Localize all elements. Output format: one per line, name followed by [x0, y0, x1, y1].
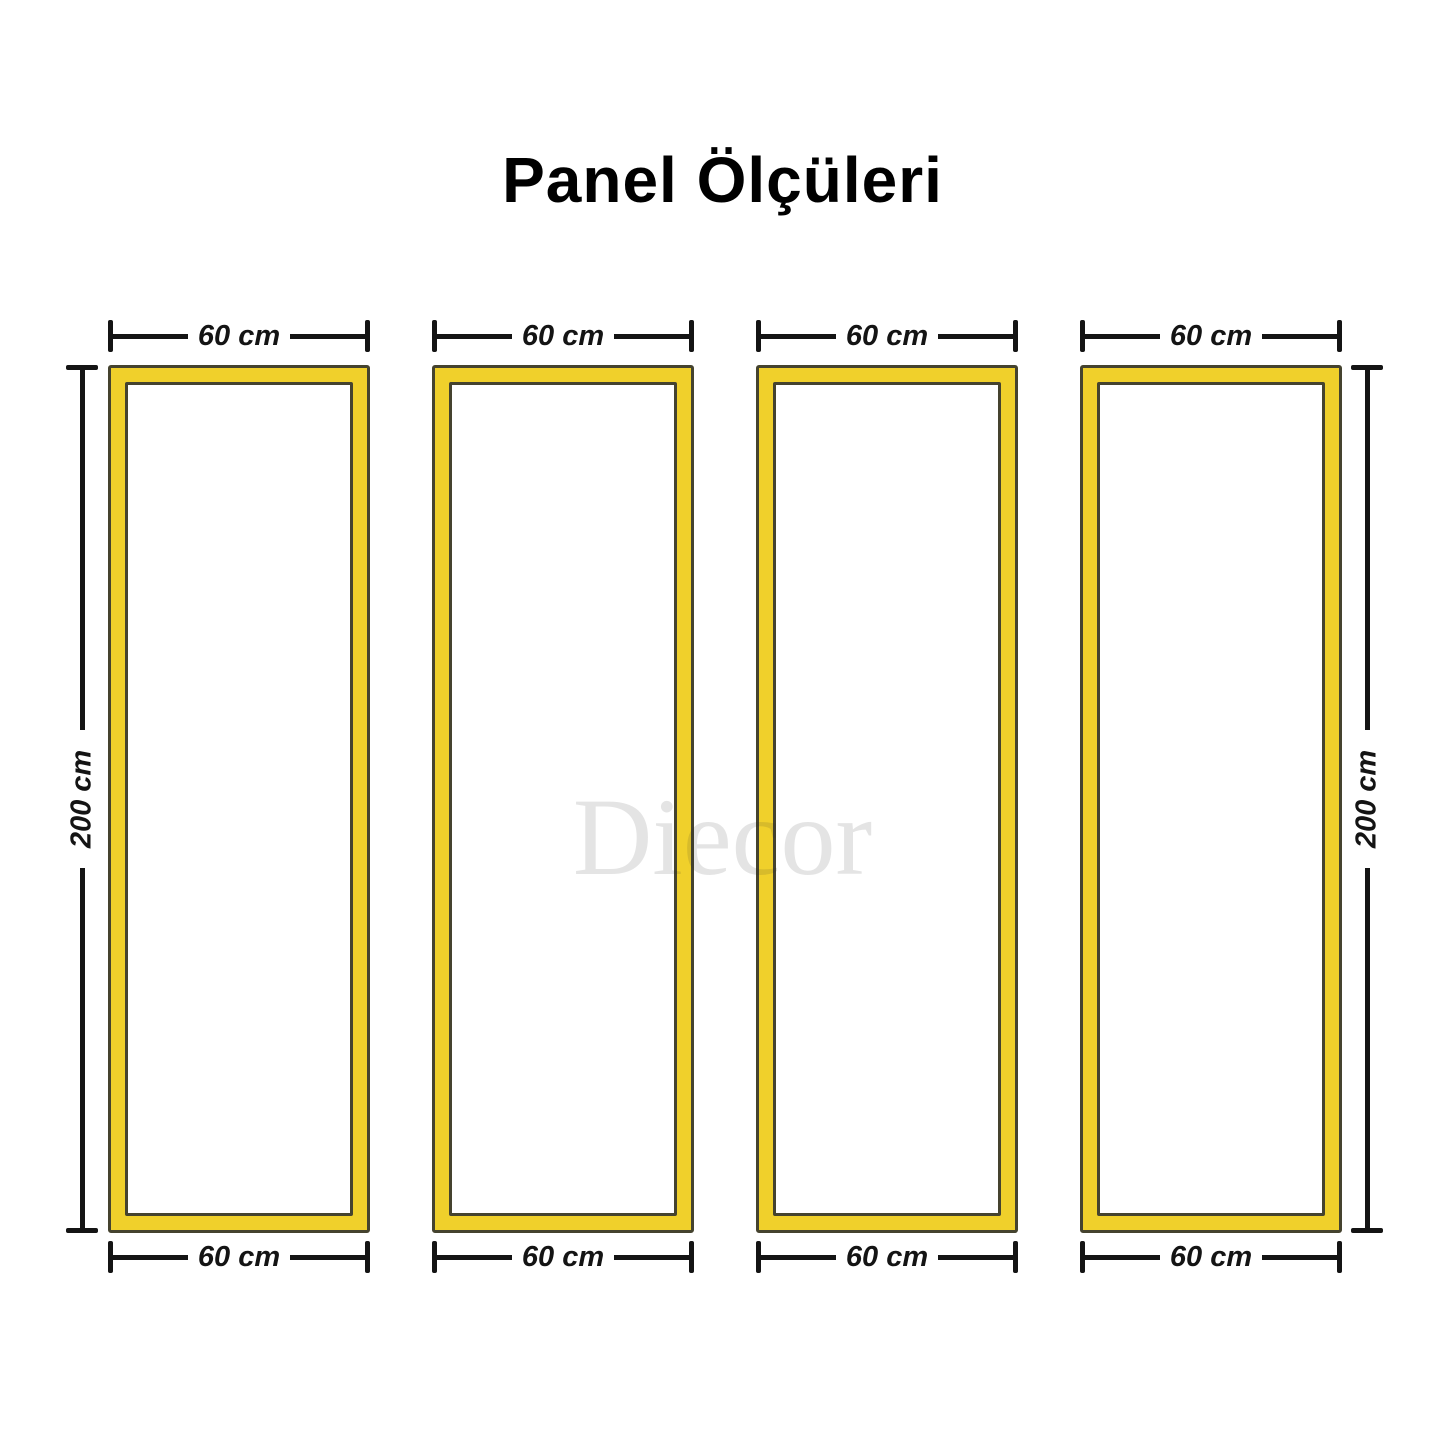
- width-dimension-label: 60 cm: [846, 1243, 928, 1272]
- dim-line-right: [614, 1255, 689, 1260]
- dim-line-left: [1085, 334, 1160, 339]
- panel-dimensions-diagram: Panel Ölçüleri 200 cm 200 cm 60 cm 60 cm: [0, 0, 1445, 1445]
- width-dimension-bottom-4: 60 cm: [1080, 1241, 1342, 1273]
- dim-line-upper: [1365, 370, 1370, 730]
- dim-line-left: [1085, 1255, 1160, 1260]
- width-dimension-top-1: 60 cm: [108, 320, 370, 352]
- dim-line-left: [113, 1255, 188, 1260]
- width-dimension-label: 60 cm: [198, 322, 280, 351]
- panel-frame-4: [1080, 365, 1342, 1233]
- width-dimension-top-4: 60 cm: [1080, 320, 1342, 352]
- panel-frame-1: [108, 365, 370, 1233]
- dim-line-right: [290, 334, 365, 339]
- width-dimension-bottom-2: 60 cm: [432, 1241, 694, 1273]
- height-dimension-right: 200 cm: [1351, 365, 1383, 1233]
- dim-tick-right: [365, 1241, 370, 1273]
- panel-inner-4: [1097, 382, 1325, 1216]
- dim-tick-right: [689, 320, 694, 352]
- width-dimension-label: 60 cm: [522, 322, 604, 351]
- width-dimension-label: 60 cm: [1170, 322, 1252, 351]
- dim-tick-right: [1337, 320, 1342, 352]
- dim-line-left: [437, 1255, 512, 1260]
- panel-inner-2: [449, 382, 677, 1216]
- panel-frame-2: [432, 365, 694, 1233]
- height-dimension-left: 200 cm: [66, 365, 98, 1233]
- width-dimension-top-2: 60 cm: [432, 320, 694, 352]
- width-dimension-bottom-3: 60 cm: [756, 1241, 1018, 1273]
- width-dimension-top-3: 60 cm: [756, 320, 1018, 352]
- dim-line-lower: [1365, 868, 1370, 1228]
- width-dimension-label: 60 cm: [1170, 1243, 1252, 1272]
- dim-line-lower: [80, 868, 85, 1228]
- dim-line-right: [938, 334, 1013, 339]
- dim-tick-right: [1013, 1241, 1018, 1273]
- dim-tick-bottom: [1351, 1228, 1383, 1233]
- dim-line-right: [1262, 334, 1337, 339]
- height-dimension-label: 200 cm: [68, 750, 97, 848]
- dim-tick-right: [1013, 320, 1018, 352]
- dim-line-right: [290, 1255, 365, 1260]
- dim-tick-right: [689, 1241, 694, 1273]
- dim-line-right: [1262, 1255, 1337, 1260]
- height-dimension-label: 200 cm: [1353, 750, 1382, 848]
- dim-tick-right: [1337, 1241, 1342, 1273]
- panel-inner-1: [125, 382, 353, 1216]
- dim-tick-right: [365, 320, 370, 352]
- width-dimension-label: 60 cm: [198, 1243, 280, 1272]
- page-title: Panel Ölçüleri: [0, 148, 1445, 212]
- dim-line-upper: [80, 370, 85, 730]
- width-dimension-label: 60 cm: [522, 1243, 604, 1272]
- dim-line-left: [761, 1255, 836, 1260]
- height-label-box: 200 cm: [1351, 730, 1383, 868]
- dim-line-left: [113, 334, 188, 339]
- dim-line-right: [614, 334, 689, 339]
- height-label-box: 200 cm: [66, 730, 98, 868]
- dim-line-right: [938, 1255, 1013, 1260]
- dim-tick-bottom: [66, 1228, 98, 1233]
- panel-frame-3: [756, 365, 1018, 1233]
- dim-line-left: [437, 334, 512, 339]
- width-dimension-label: 60 cm: [846, 322, 928, 351]
- panel-inner-3: [773, 382, 1001, 1216]
- dim-line-left: [761, 334, 836, 339]
- width-dimension-bottom-1: 60 cm: [108, 1241, 370, 1273]
